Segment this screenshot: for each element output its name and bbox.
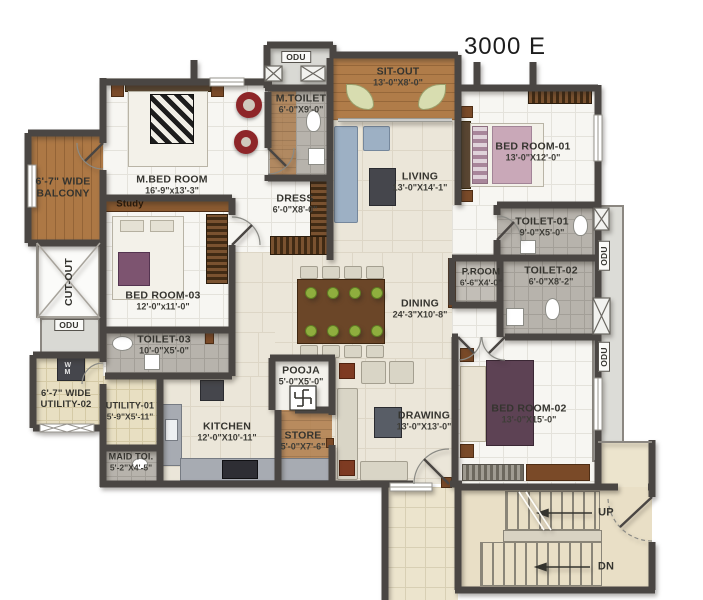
odu-label-right-1: ODU [598,241,610,271]
odu-label-right-2: ODU [598,342,610,372]
room-label-utility02: 6'-7" WIDE UTILITY-02 [40,388,91,410]
stair-arrows [519,492,592,571]
plan-title: 3000 E [464,33,546,61]
room-label-mtoilet: M.TOILET 6'-0"X9'-0" [276,93,326,116]
room-label-dining: DINING 24'-3"X10'-8" [393,298,448,321]
room-label-proom: P.ROOM 6'-6"X4'-0" [460,266,502,287]
room-label-balcony: 6'-7" WIDE BALCONY [36,176,91,201]
room-label-sitout: SIT-OUT 13'-0"X8'-0" [373,66,423,89]
room-label-bed01: BED ROOM-01 13'-0"X12'-0" [495,141,570,164]
odu-label-left: ODU [54,319,84,331]
swastika-symbol [290,386,316,410]
study-label: Study [116,198,143,209]
room-label-maid: MAID TOI. 5'-2"X4'-5" [109,452,154,473]
odu-label-top: ODU [281,51,311,63]
dining-plates [306,288,383,337]
room-label-toilet03: TOILET-03 10'-0"X5'-0" [137,334,191,357]
floor-plan-3000e: W M [0,0,703,600]
room-label-bed02: BED ROOM-02 13'-0"X15'-0" [491,403,566,426]
room-label-utility01: UTILITY-01 5'-9"X5'-11" [106,401,155,422]
room-label-pooja: POOJA 5'-0"X5'-0" [279,365,324,388]
room-label-living: LIVING 13'-0"X14'-1" [393,171,448,194]
room-label-dress: DRESS 6'-0"X8'-0" [273,193,318,216]
room-label-toilet01: TOILET-01 9'-0"X5'-0" [515,216,569,239]
room-label-mbed: M.BED ROOM 16'-9"x13'-3" [136,174,207,197]
room-label-bed03: BED ROOM-03 12'-0"x11'-0" [125,290,200,313]
stair-up-label: UP [598,507,614,520]
stair-dn-label: DN [598,561,614,574]
room-label-toilet02: TOILET-02 6'-0"X8'-2" [524,265,578,288]
room-label-store: STORE 5'-0"X7'-6" [281,430,326,453]
room-label-drawing: DRAWING 13'-0"X13'-0" [397,410,452,433]
room-label-cutout: CUT-OUT [63,258,75,306]
room-label-kitchen: KITCHEN 12'-0"X10'-11" [197,421,256,444]
